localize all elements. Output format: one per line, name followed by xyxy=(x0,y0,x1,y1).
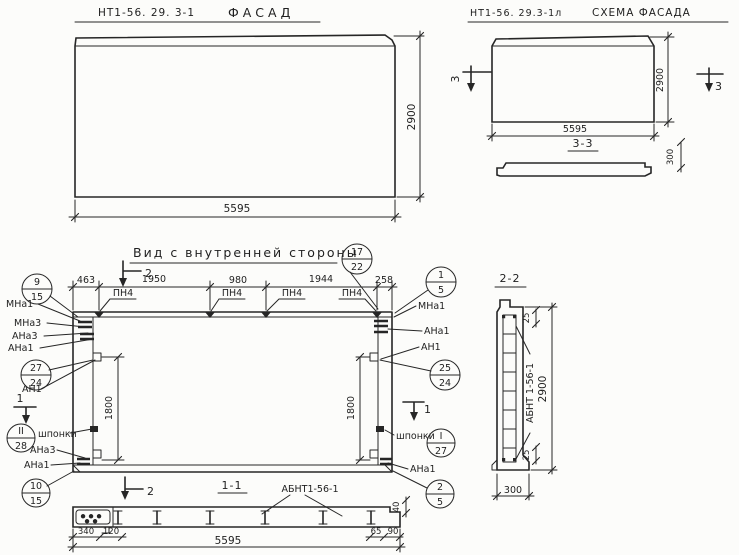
facade-panel-outline xyxy=(75,35,395,197)
cut2-top-label: 2 xyxy=(145,267,152,280)
section22-cage-dots xyxy=(502,315,516,461)
cut1-right-arrow xyxy=(410,412,418,421)
leader-ana1-r xyxy=(388,329,422,331)
schema-title: СХЕМА ФАСАДА xyxy=(592,7,691,19)
inner-dim-left: 1800 xyxy=(104,396,115,420)
pn4-label-4: ПН4 xyxy=(342,288,362,299)
pn4-labels: ПН4 ПН4 ПН4 ПН4 xyxy=(100,288,376,311)
leader-an1-r xyxy=(381,347,419,359)
leader-ana3-lb xyxy=(57,450,85,458)
dim-40: 40 xyxy=(392,502,402,513)
shear-keys xyxy=(90,426,384,432)
label-an1-r: АН1 xyxy=(421,342,441,353)
label-ana1-r: АНа1 xyxy=(424,326,450,337)
pn4-label-1: ПН4 xyxy=(113,288,133,299)
dim-5595-bottom: 5595 xyxy=(215,535,242,547)
cut1-right-mark: 1 xyxy=(403,402,431,421)
section11-part-label: АБНТ1-56-1 xyxy=(282,484,339,495)
section11-rebar-dots xyxy=(81,514,101,523)
mark-9-15: 9 15 xyxy=(22,274,78,317)
panel-edge-tabs xyxy=(93,353,378,458)
label-ana1-rb: АНа1 xyxy=(410,464,436,475)
label-mna1-tr: МНа1 xyxy=(418,301,445,312)
mark-bottom: 5 xyxy=(438,285,444,296)
pn4-leader-2 xyxy=(211,299,245,311)
mark-bottom: 24 xyxy=(439,378,451,389)
mark-top: 10 xyxy=(30,481,42,492)
drawing-sheet: НТ1-56. 29. 3-1 ФАСАД 5595 2900 НТ1-56. … xyxy=(0,0,739,555)
pn4-label-3: ПН4 xyxy=(282,288,302,299)
schema-code: НТ1-56. 29.3-1л xyxy=(470,8,562,19)
mark-top: 17 xyxy=(351,247,363,258)
cut3-right-label: 3 xyxy=(715,80,722,93)
inner-view: Вид с внутренней стороны 463 1950 980 19… xyxy=(6,244,460,508)
label-mna3-l: МНа3 xyxy=(14,318,41,329)
mark-top: 2 xyxy=(437,482,443,493)
panel-inner-lines xyxy=(73,317,392,472)
pn4-label-2: ПН4 xyxy=(222,288,242,299)
label-ana3-lb: АНа3 xyxy=(30,445,56,456)
facade-dim-width: 5595 xyxy=(224,203,251,215)
mark-top: 25 xyxy=(439,363,451,374)
inner-title: Вид с внутренней стороны xyxy=(133,245,359,260)
section22-view: 2-2 АБНТ 1-56-1 25 25 2900 300 xyxy=(492,272,557,500)
mark-bottom: 28 xyxy=(15,441,27,452)
mark-2-5: 2 5 xyxy=(393,471,454,508)
cut1-right-label: 1 xyxy=(424,403,431,416)
schema-cut-mark-right: 3 xyxy=(697,68,723,93)
inner-dim-right-lines xyxy=(356,357,370,460)
label-mna1-tl: МНа1 xyxy=(6,299,33,310)
mark-top: 27 xyxy=(30,363,42,374)
pn4-leader-3 xyxy=(267,299,305,311)
inner-dim-right: 1800 xyxy=(346,396,357,420)
mark-II-28: II 28 xyxy=(7,424,35,452)
pn4-leader-1 xyxy=(100,299,136,311)
schema-dim-width: 5595 xyxy=(563,124,587,135)
cut3-left-arrow xyxy=(467,83,475,92)
mark-top: II xyxy=(18,426,24,437)
facade-code: НТ1-56. 29. 3-1 xyxy=(98,7,195,19)
dim-65: 65 xyxy=(371,527,382,537)
cut1-left-mark: 1 xyxy=(14,392,36,424)
dim-25-bottom: 25 xyxy=(522,450,532,461)
section11-view: 1-1 АБНТ1-56-1 340 120 5595 65 90 40 xyxy=(68,479,410,552)
leader-mna3-l xyxy=(47,323,85,327)
panel-outer xyxy=(73,312,392,472)
cut2-bottom-mark: 2 xyxy=(121,477,154,500)
dim-2900-right: 2900 xyxy=(537,376,549,403)
pn4-leader-4 xyxy=(339,299,376,311)
inner-dim-980: 980 xyxy=(229,275,247,286)
drawing-canvas: НТ1-56. 29. 3-1 ФАСАД 5595 2900 НТ1-56. … xyxy=(0,0,739,555)
section33-dim-thickness: 300 xyxy=(666,149,676,165)
mark-27-24: 27 24 xyxy=(21,360,93,390)
inner-dim-1944: 1944 xyxy=(309,274,333,285)
dim-90: 90 xyxy=(388,527,399,537)
section22-cage xyxy=(503,315,516,462)
mark-bottom: 22 xyxy=(351,262,363,273)
dim-25-top: 25 xyxy=(522,313,532,324)
facade-title: ФАСАД xyxy=(228,5,294,20)
leader-ana1-rb xyxy=(388,463,408,469)
cut1-left-arrow xyxy=(22,415,30,424)
inner-dim-258: 258 xyxy=(375,275,393,286)
section11-title: 1-1 xyxy=(222,479,243,492)
mark-top: 1 xyxy=(438,270,444,281)
label-ana1-lb: АНа1 xyxy=(24,460,50,471)
section22-title: 2-2 xyxy=(500,272,521,285)
facade-dim-height: 2900 xyxy=(406,104,418,131)
schema-cut-mark-left: 3 xyxy=(449,66,491,92)
mark-bottom: 5 xyxy=(437,497,443,508)
cut2-top-arrow xyxy=(119,278,127,287)
mark-bottom: 27 xyxy=(435,446,447,457)
section33-strip xyxy=(497,163,651,176)
cut2-bottom-label: 2 xyxy=(147,485,154,498)
schema-panel-outline xyxy=(492,36,654,122)
mark-I-27: I 27 xyxy=(427,429,455,457)
dim-120: 120 xyxy=(103,527,119,537)
facade-view: НТ1-56. 29. 3-1 ФАСАД 5595 2900 xyxy=(69,5,424,222)
mark-top: 9 xyxy=(34,277,40,288)
section11-part-leaders xyxy=(262,495,342,516)
dim-340: 340 xyxy=(78,527,94,537)
cut2-bottom-arrow xyxy=(121,491,129,500)
cut3-left-label: 3 xyxy=(449,76,462,83)
label-ana1-l: АНа1 xyxy=(8,343,34,354)
cut3-right-arrow xyxy=(705,83,713,92)
schema-dim-height: 2900 xyxy=(655,68,666,92)
ibar-stems xyxy=(118,511,371,524)
schema-view: НТ1-56. 29.3-1л СХЕМА ФАСАДА 2900 5595 3… xyxy=(449,7,728,176)
anchor-hatches xyxy=(77,321,392,464)
mark-bottom: 24 xyxy=(30,378,42,389)
label-ana3-l: АНа3 xyxy=(12,331,38,342)
inner-dim-463: 463 xyxy=(77,275,95,286)
dim-300: 300 xyxy=(504,485,522,496)
leader-ana1-l xyxy=(40,339,93,348)
label-shponki-l: шпонки xyxy=(38,429,77,440)
mark-bottom: 15 xyxy=(30,496,42,507)
mark-10-15: 10 15 xyxy=(22,471,74,507)
section22-part-label: АБНТ 1-56-1 xyxy=(525,363,536,423)
section33-title: 3-3 xyxy=(573,137,594,150)
mark-bottom: 15 xyxy=(31,292,43,303)
mark-top: I xyxy=(440,431,443,442)
